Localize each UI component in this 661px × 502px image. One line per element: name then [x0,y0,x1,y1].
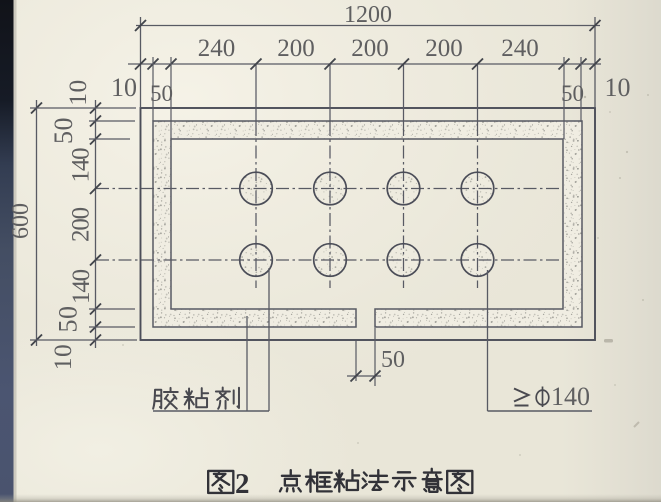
svg-text:50: 50 [49,117,78,144]
svg-text:200: 200 [425,35,463,62]
svg-text:240: 240 [501,35,539,62]
svg-text:1200: 1200 [344,2,392,28]
svg-text:600: 600 [8,203,34,239]
svg-text:200: 200 [67,207,94,242]
svg-text:140: 140 [68,148,95,183]
svg-text:140: 140 [68,269,95,304]
svg-text:50: 50 [150,81,173,106]
svg-text:200: 200 [351,35,389,62]
svg-text:50: 50 [381,347,405,373]
svg-text:50: 50 [561,81,584,106]
svg-text:50: 50 [53,306,82,333]
svg-text:10: 10 [605,73,631,102]
svg-text:10: 10 [111,73,137,102]
svg-text:140: 140 [551,382,590,411]
svg-text:10: 10 [48,344,77,371]
svg-text:2: 2 [235,468,250,500]
svg-text:10: 10 [63,79,92,106]
svg-text:200: 200 [277,35,315,62]
svg-text:240: 240 [198,35,236,62]
